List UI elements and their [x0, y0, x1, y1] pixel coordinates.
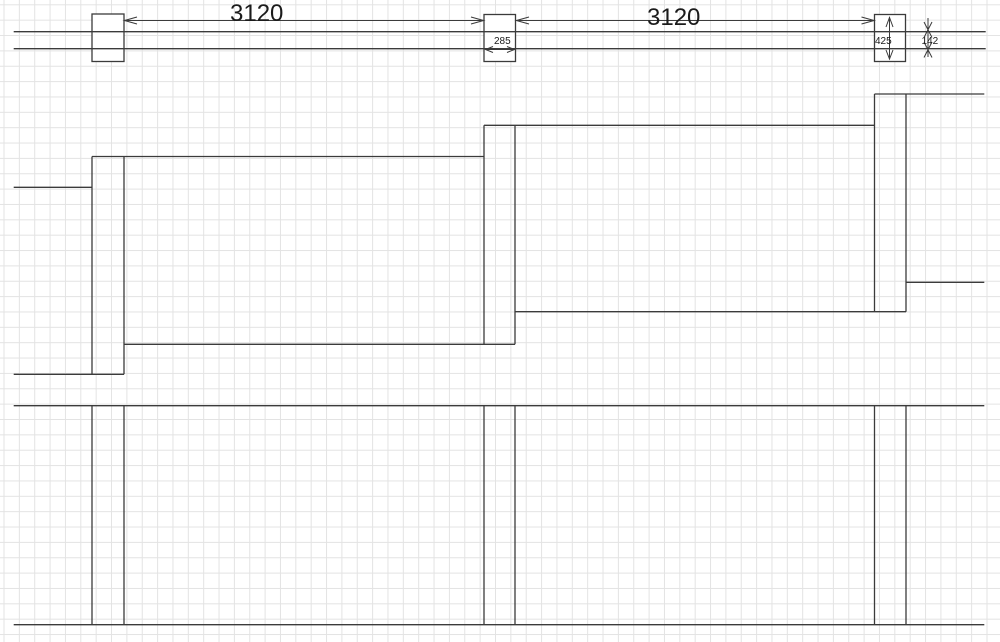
dim-label-post-width: 285: [494, 37, 511, 47]
dim-label-rail-gap: 142: [922, 37, 939, 47]
post-left: [92, 14, 124, 62]
dim-label-span-left: 3120: [230, 2, 283, 26]
dim-line-left: [125, 17, 484, 24]
plan-drawing: [0, 0, 1000, 642]
upper-wall-run: [14, 94, 985, 374]
drawing-canvas: 3120 3120 285 425 142: [0, 0, 1000, 642]
lower-wall-run: [14, 406, 985, 625]
dim-label-post-depth: 425: [875, 37, 892, 47]
dim-label-span-right: 3120: [647, 6, 700, 30]
